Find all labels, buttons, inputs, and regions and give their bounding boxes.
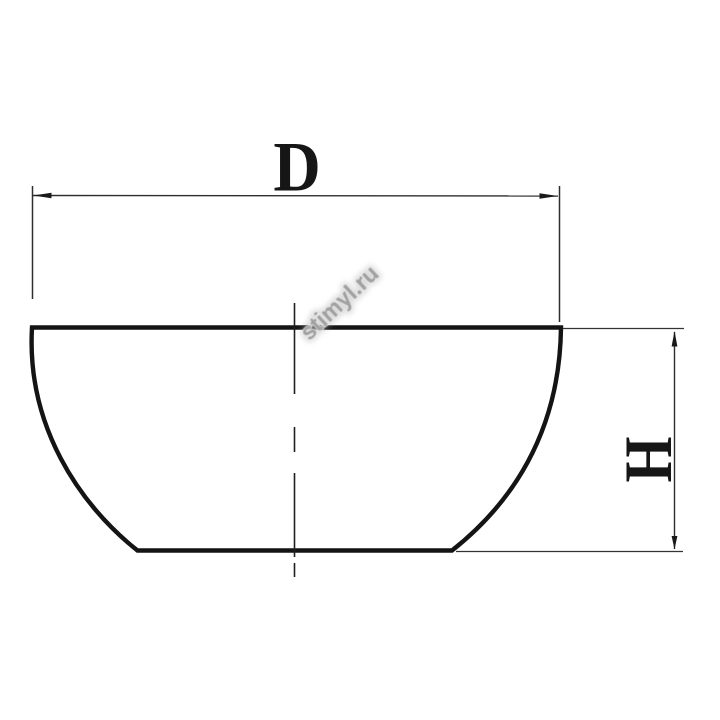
svg-text:D: D <box>273 127 320 206</box>
svg-text:H: H <box>610 436 686 482</box>
